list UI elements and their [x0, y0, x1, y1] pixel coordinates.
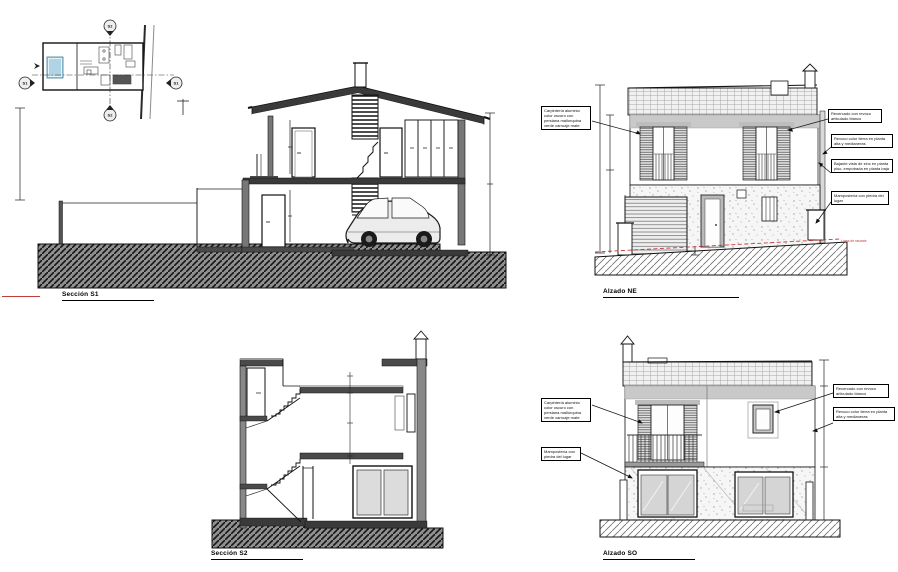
alzado-ne-drawing: Línea de rasante — [535, 55, 898, 305]
dimension-lines — [819, 360, 829, 520]
chimney — [414, 331, 428, 359]
sliding-door-right — [735, 472, 793, 517]
red-reference-line — [2, 296, 40, 297]
upper-door — [395, 394, 415, 432]
rasante-note: Línea de rasante — [841, 239, 867, 243]
alzado-so-drawing — [535, 335, 898, 567]
garage-door — [625, 197, 687, 255]
ne-callout-mamposteria: Mampostería con piedra del lugar — [831, 191, 889, 205]
ground-floor-facade — [616, 185, 826, 255]
ne-callout-revoco: Revoco color tierra en planta alta y med… — [831, 134, 893, 148]
ground-floor-facade — [620, 467, 815, 520]
glazed-door — [353, 466, 412, 518]
marker-s2-top: S2 — [104, 20, 116, 36]
tiled-roof — [628, 64, 817, 115]
seccion-s1-label: Sección S1 — [62, 291, 154, 301]
seccion-s1-drawing — [0, 50, 530, 305]
entry-door — [701, 195, 724, 247]
boundary-wall — [59, 201, 197, 244]
vent — [737, 190, 746, 198]
drawing-sheet: S2 S2 S1 S1 — [0, 0, 898, 572]
so-callout-recercado: Recercado con revoco articulado blanco — [833, 384, 889, 398]
upper-window-left — [636, 122, 691, 180]
chimney — [621, 336, 634, 362]
floor-slab — [243, 178, 465, 184]
upper-window-right — [739, 122, 794, 180]
chimney — [803, 64, 817, 88]
tiled-roof — [623, 358, 812, 386]
sliding-door-left — [638, 470, 697, 517]
alzado-so-label: Alzado SO — [603, 550, 695, 560]
ground-window — [762, 197, 777, 221]
ne-callout-recercado: Recercado con revoco articulado blanco — [828, 109, 882, 123]
ne-callout-carpinteria: Carpintería aluminio color oscuro con pe… — [541, 106, 591, 130]
terrain — [600, 520, 840, 537]
so-callout-carpinteria: Carpintería aluminio color oscuro con pe… — [541, 398, 591, 422]
terrace-enclosure — [197, 188, 263, 252]
so-callout-mamposteria: Mampostería con piedra del lugar — [541, 447, 581, 461]
seccion-s2-drawing — [195, 330, 460, 570]
alzado-ne-label: Alzado NE — [603, 288, 739, 298]
svg-text:S2: S2 — [108, 24, 114, 29]
ne-callout-bajante: Bajante vista de zinc en planta piso, em… — [831, 159, 893, 173]
lower-door-frame — [303, 466, 313, 519]
chimney — [353, 63, 368, 87]
seccion-s2-label: Sección S2 — [211, 550, 303, 560]
so-callout-revoco: Revoco color tierra en planta alta y med… — [833, 407, 895, 421]
